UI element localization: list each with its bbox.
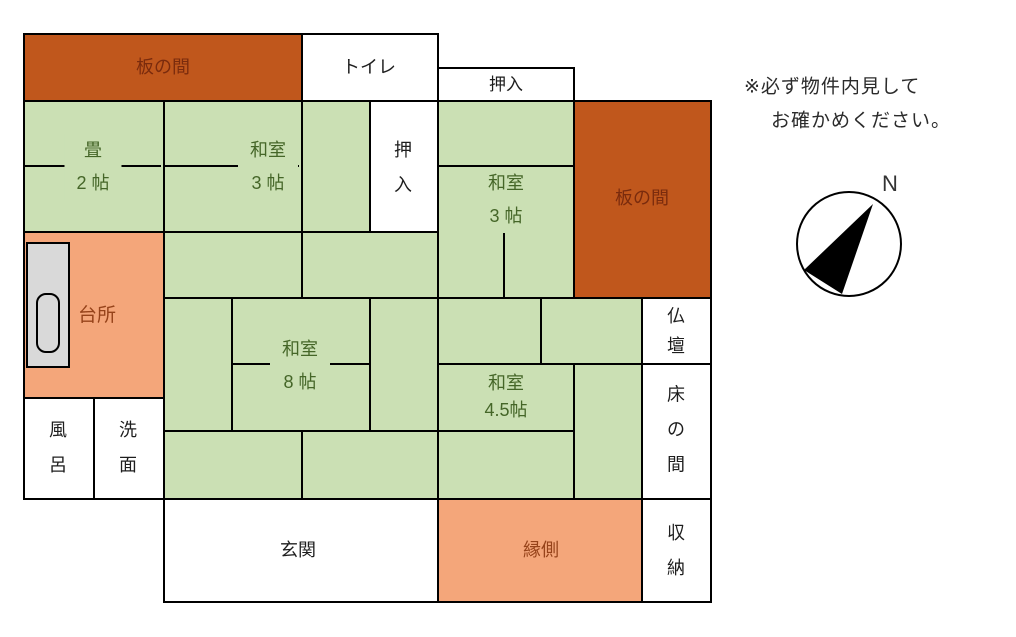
room-label-butsudan: 仏壇 [666,301,686,361]
tatami-divider-line [503,233,505,297]
room-label-oshiire-vertical: 押入 [393,133,413,203]
room-size: 4.5帖 [484,397,527,424]
room-label-genkan: 玄関 [280,533,316,567]
tatami-cell [163,231,303,299]
room-label-washroom: 洗面 [118,413,138,483]
disclaimer-text-line2: お確かめください。 [771,106,951,133]
room-size: 2 帖 [76,167,109,200]
tatami-cell [437,297,542,365]
kitchen-sink [36,293,60,353]
room-name: 和室 [488,167,524,200]
room-label-toilet: トイレ [342,50,396,84]
disclaimer-text-line1: ※必ず物件内見して [744,72,920,99]
room-label-oshiire-top: 押入 [489,68,523,102]
room-label-kitchen: 台所 [78,299,116,333]
tatami-cell [540,297,643,365]
tatami-cell [301,100,371,233]
tatami-cell [437,430,575,500]
room-name: 和室 [250,134,286,167]
room-label-washitsu-8jo: 和室 8 帖 [270,333,330,399]
room-label-bath: 風呂 [48,413,68,483]
room-size: 3 帖 [250,167,286,200]
tatami-cell [573,363,643,500]
room-name: 畳 [76,134,109,167]
room-label-itanoma-right: 板の間 [615,181,669,215]
tatami-cell [163,297,233,432]
tatami-cell [301,231,439,299]
room-size: 3 帖 [488,200,524,233]
room-label-tokonoma: 床の間 [666,378,686,483]
room-label-itanoma-top: 板の間 [136,50,190,84]
room-name: 和室 [484,370,527,397]
tatami-cell [369,297,439,432]
room-label-washitsu-3jo-left: 和室 3 帖 [238,134,298,200]
room-label-washitsu-45jo: 和室 4.5帖 [484,370,527,424]
floorplan-page: 板の間 トイレ 押入 畳 2 帖 和室 3 帖 押入 和室 3 帖 板の間 台所… [0,0,1016,637]
room-label-shuunou: 収納 [666,516,686,586]
room-name: 和室 [282,333,318,366]
room-label-washitsu-3jo-right: 和室 3 帖 [488,167,524,233]
room-label-engawa: 縁側 [523,533,559,567]
tatami-cell [163,430,303,500]
room-size: 8 帖 [282,366,318,399]
room-label-tatami-2jo: 畳 2 帖 [64,134,121,200]
compass-icon [782,172,922,312]
tatami-cell [301,430,439,500]
